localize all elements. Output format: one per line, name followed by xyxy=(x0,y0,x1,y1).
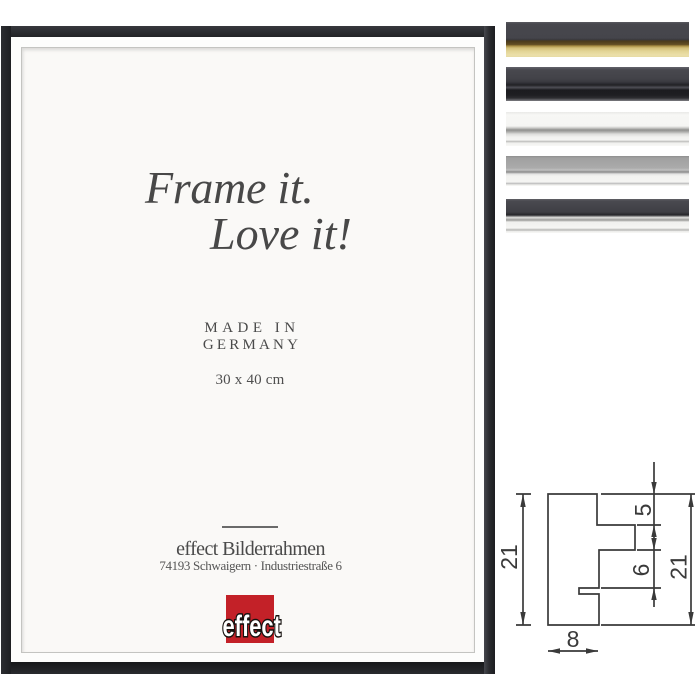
svg-text:8: 8 xyxy=(567,626,580,652)
svg-text:21: 21 xyxy=(666,554,692,580)
svg-text:21: 21 xyxy=(496,544,522,570)
svg-text:effect: effect xyxy=(223,609,282,643)
svg-text:6: 6 xyxy=(628,564,654,577)
svg-text:5: 5 xyxy=(630,504,656,517)
